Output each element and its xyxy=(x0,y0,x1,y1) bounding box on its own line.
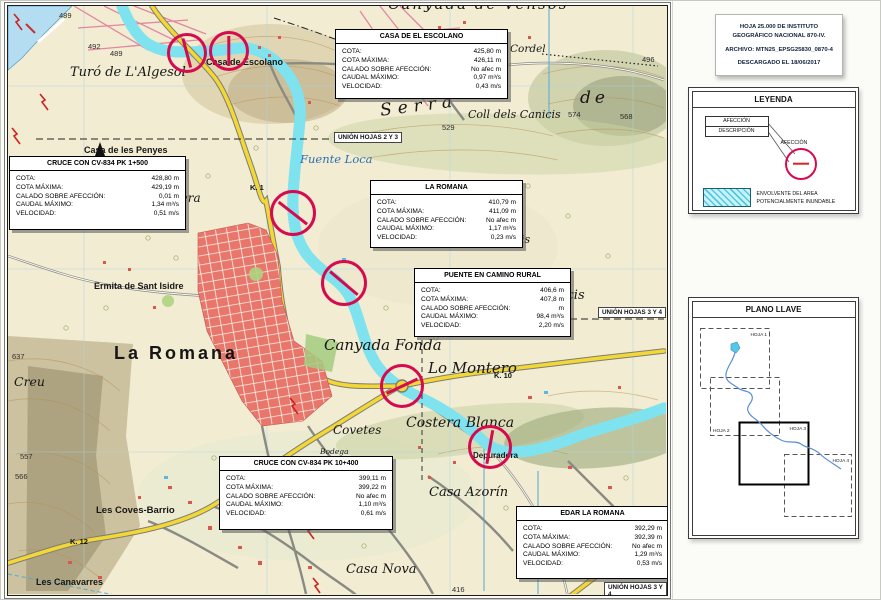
data-box-title: PUENTE EN CAMINO RURAL xyxy=(415,269,570,283)
field-value: m xyxy=(559,305,565,314)
town-label: La Romana xyxy=(114,344,238,362)
field-value: 1,10 m³/s xyxy=(359,501,386,510)
field-value: 410,79 m xyxy=(489,199,517,208)
data-box-edar: EDAR LA ROMANA COTA:392,29 m COTA MÁXIMA… xyxy=(516,506,668,579)
km-marker: K. 1 xyxy=(250,184,264,192)
place-label: Bodega xyxy=(320,448,349,456)
affection-marker xyxy=(270,190,316,236)
key-plan-sheet-label: HOJA 4 xyxy=(832,458,849,464)
park xyxy=(249,267,263,281)
field-value: 1,29 m³/s xyxy=(635,551,662,560)
elevation-label: 416 xyxy=(452,586,465,594)
field-value: 1,17 m³/s xyxy=(489,225,516,234)
key-plan-title: PLANO LLAVE xyxy=(693,302,855,318)
field-label: CAUDAL MÁXIMO: xyxy=(421,313,478,322)
elevation-label: 568 xyxy=(620,113,633,121)
field-value: 0,01 m xyxy=(159,193,179,202)
place-label: Canyada Fonda xyxy=(324,338,442,353)
key-plan-sheet-2 xyxy=(710,377,779,435)
place-label: de xyxy=(580,90,609,107)
key-plan-box: PLANO LLAVE HOJA 1 HOJA 2 HOJA 3 HOJA 4 xyxy=(688,297,859,539)
elevation-label: 492 xyxy=(88,43,101,51)
key-plan-reservoir xyxy=(731,342,740,353)
field-label: CAUDAL MÁXIMO: xyxy=(226,501,283,510)
field-value: 0,43 m/s xyxy=(476,83,501,92)
meta-line: DESCARGADO EL 18/06/2017 xyxy=(716,59,842,68)
legend-callout-box: AFECCIÓN DESCRIPCIÓN xyxy=(705,116,769,137)
map-sheet-page: Canyada de Vensos Turó de L'Algesol Casa… xyxy=(0,0,881,600)
field-value: 0,61 m/s xyxy=(361,510,386,519)
field-label: COTA MÁXIMA: xyxy=(421,296,468,305)
field-value: 429,19 m xyxy=(152,184,180,193)
affection-slash xyxy=(486,430,494,464)
field-label: COTA: xyxy=(16,175,36,184)
field-label: COTA MÁXIMA: xyxy=(377,208,424,217)
field-label: CAUDAL MÁXIMO: xyxy=(523,551,580,560)
union-label: UNIÓN HOJAS 2 Y 3 xyxy=(334,132,402,143)
field-value: 2,20 m/s xyxy=(539,322,564,331)
affection-slash xyxy=(278,201,308,225)
field-label: VELOCIDAD: xyxy=(377,234,417,243)
field-label: COTA MÁXIMA: xyxy=(523,534,570,543)
topographic-map: Canyada de Vensos Turó de L'Algesol Casa… xyxy=(7,5,668,596)
field-label: VELOCIDAD: xyxy=(342,83,382,92)
place-label: Ermita de Sant Isidre xyxy=(94,282,184,291)
elevation-label: 574 xyxy=(568,111,581,119)
data-box-cruce-1500: CRUCE CON CV-834 PK 1+500 COTA:428,80 m … xyxy=(9,156,186,230)
place-label: Coll dels Canicis xyxy=(468,109,561,120)
elevation-label: 557 xyxy=(20,453,33,461)
key-plan-sheet-label: HOJA 3 xyxy=(789,426,806,432)
field-label: COTA: xyxy=(421,287,441,296)
affection-slash xyxy=(329,270,358,295)
field-label: COTA MÁXIMA: xyxy=(342,57,389,66)
field-value: 392,39 m xyxy=(635,534,663,543)
legend-flood-swatch xyxy=(703,188,751,207)
meta-line: GEOGRÁFICO NACIONAL 870-IV. xyxy=(716,32,842,41)
field-value: No afec m xyxy=(632,543,662,552)
place-label: Casa Azorín xyxy=(429,486,508,499)
data-box-cruce-10400: CRUCE CON CV-834 PK 10+400 COTA:399,11 m… xyxy=(219,456,393,530)
legend-affection-label: AFECCIÓN xyxy=(781,140,808,146)
legend-envelope-label: ENVOLVENTE DEL AREA POTENCIALMENTE INUND… xyxy=(757,190,836,207)
field-value: No afec m xyxy=(471,66,501,75)
place-label: Casa Nova xyxy=(346,563,417,576)
data-box-title: CRUCE CON CV-834 PK 1+500 xyxy=(10,157,185,171)
union-label: UNIÓN HOJAS 3 Y 4 xyxy=(604,582,667,596)
legend-box: LEYENDA AFECCIÓN DESCRIPCIÓN AFECCIÓN EN… xyxy=(688,87,859,214)
field-label: VELOCIDAD: xyxy=(226,510,266,519)
field-value: No afec m xyxy=(356,493,386,502)
field-label: COTA MÁXIMA: xyxy=(16,184,63,193)
key-plan-map: HOJA 1 HOJA 2 HOJA 3 HOJA 4 xyxy=(693,318,855,536)
legend-callout-affection: AFECCIÓN xyxy=(706,117,768,127)
field-value: 0,97 m³/s xyxy=(474,74,501,83)
field-label: CAUDAL MÁXIMO: xyxy=(377,225,434,234)
field-value: 0,51 m/s xyxy=(154,210,179,219)
field-value: 407,8 m xyxy=(540,296,564,305)
affection-slash xyxy=(228,36,231,66)
data-box-title: CASA DE EL ESCOLANO xyxy=(336,30,507,44)
affection-marker xyxy=(209,31,249,71)
field-value: 392,29 m xyxy=(635,525,663,534)
panel-separator xyxy=(672,1,673,600)
field-value: 399,22 m xyxy=(359,484,387,493)
field-value: No afec m xyxy=(486,217,516,226)
field-value: 406,6 m xyxy=(540,287,564,296)
place-label: Casa de les Penyes xyxy=(84,146,168,155)
elevation-label: 529 xyxy=(442,124,455,132)
key-plan-river xyxy=(725,352,840,469)
field-label: VELOCIDAD: xyxy=(523,560,563,569)
field-value: 98,4 m³/s xyxy=(537,313,564,322)
field-value: 428,80 m xyxy=(152,175,180,184)
elevation-label: 489 xyxy=(59,12,72,20)
elevation-label: 637 xyxy=(12,353,25,361)
km-marker: K. 10 xyxy=(494,372,512,380)
legend-callout-description: DESCRIPCIÓN xyxy=(706,127,768,136)
field-label: COTA MÁXIMA: xyxy=(226,484,273,493)
field-label: VELOCIDAD: xyxy=(16,210,56,219)
km-marker: K. 12 xyxy=(70,538,88,546)
data-box-puente-camino: PUENTE EN CAMINO RURAL COTA:406,6 m COTA… xyxy=(414,268,571,337)
data-box-la-romana: LA ROMANA COTA:410,79 m COTA MÁXIMA:411,… xyxy=(370,180,523,248)
legend-title: LEYENDA xyxy=(693,92,855,108)
meta-line: ARCHIVO: MTN25_EPSG25830_0870-4 xyxy=(716,46,842,55)
field-label: CAUDAL MÁXIMO: xyxy=(16,201,73,210)
place-label: Les Canavarres xyxy=(36,578,103,587)
place-label: Cordel xyxy=(510,44,546,55)
affection-slash xyxy=(386,378,418,395)
place-label: Turó de L'Algesol xyxy=(70,66,186,79)
field-label: COTA: xyxy=(377,199,397,208)
field-label: COTA: xyxy=(226,475,246,484)
meta-line: HOJA 25.000 DE INSTITUTO xyxy=(716,23,842,32)
data-box-title: LA ROMANA xyxy=(371,181,522,195)
field-label: VELOCIDAD: xyxy=(421,322,461,331)
place-label: Les Coves-Barrio xyxy=(96,506,175,516)
elevation-label: 566 xyxy=(15,473,28,481)
field-value: 1,34 m³/s xyxy=(152,201,179,210)
elevation-label: 489 xyxy=(110,50,123,58)
sheet-metadata-box: HOJA 25.000 DE INSTITUTO GEOGRÁFICO NACI… xyxy=(715,14,843,76)
field-value: 399,11 m xyxy=(359,475,386,484)
place-label: Fuente Loca xyxy=(300,154,373,166)
key-plan-sheet-label: HOJA 1 xyxy=(750,332,767,338)
data-box-title: EDAR LA ROMANA xyxy=(517,507,668,521)
field-value: 425,80 m xyxy=(474,48,502,57)
affection-slash xyxy=(182,38,192,68)
field-label: COTA: xyxy=(342,48,362,57)
elevation-label: 496 xyxy=(642,56,655,64)
affection-marker xyxy=(468,425,512,469)
key-plan-sheet-label: HOJA 2 xyxy=(713,428,730,434)
data-box-casa-escolano: CASA DE EL ESCOLANO COTA:425,80 m COTA M… xyxy=(335,29,508,99)
park xyxy=(162,295,174,307)
field-label: COTA: xyxy=(523,525,543,534)
legend-affection-marker xyxy=(785,148,817,180)
affection-marker xyxy=(321,260,367,306)
field-value: 411,09 m xyxy=(489,208,516,217)
legend-affection-bar xyxy=(793,162,809,165)
field-value: 426,11 m xyxy=(474,57,501,66)
place-label: Creu xyxy=(14,376,45,389)
union-label: UNIÓN HOJAS 3 Y 4 xyxy=(598,307,666,318)
place-label: Covetes xyxy=(333,424,381,436)
data-box-title: CRUCE CON CV-834 PK 10+400 xyxy=(220,457,392,471)
field-value: 0,53 m/s xyxy=(637,560,662,569)
field-label: CAUDAL MÁXIMO: xyxy=(342,74,399,83)
affection-marker xyxy=(167,33,207,73)
field-value: 0,23 m/s xyxy=(491,234,516,243)
affection-marker xyxy=(380,364,424,408)
place-label: Canyada de Vensos xyxy=(388,5,568,12)
